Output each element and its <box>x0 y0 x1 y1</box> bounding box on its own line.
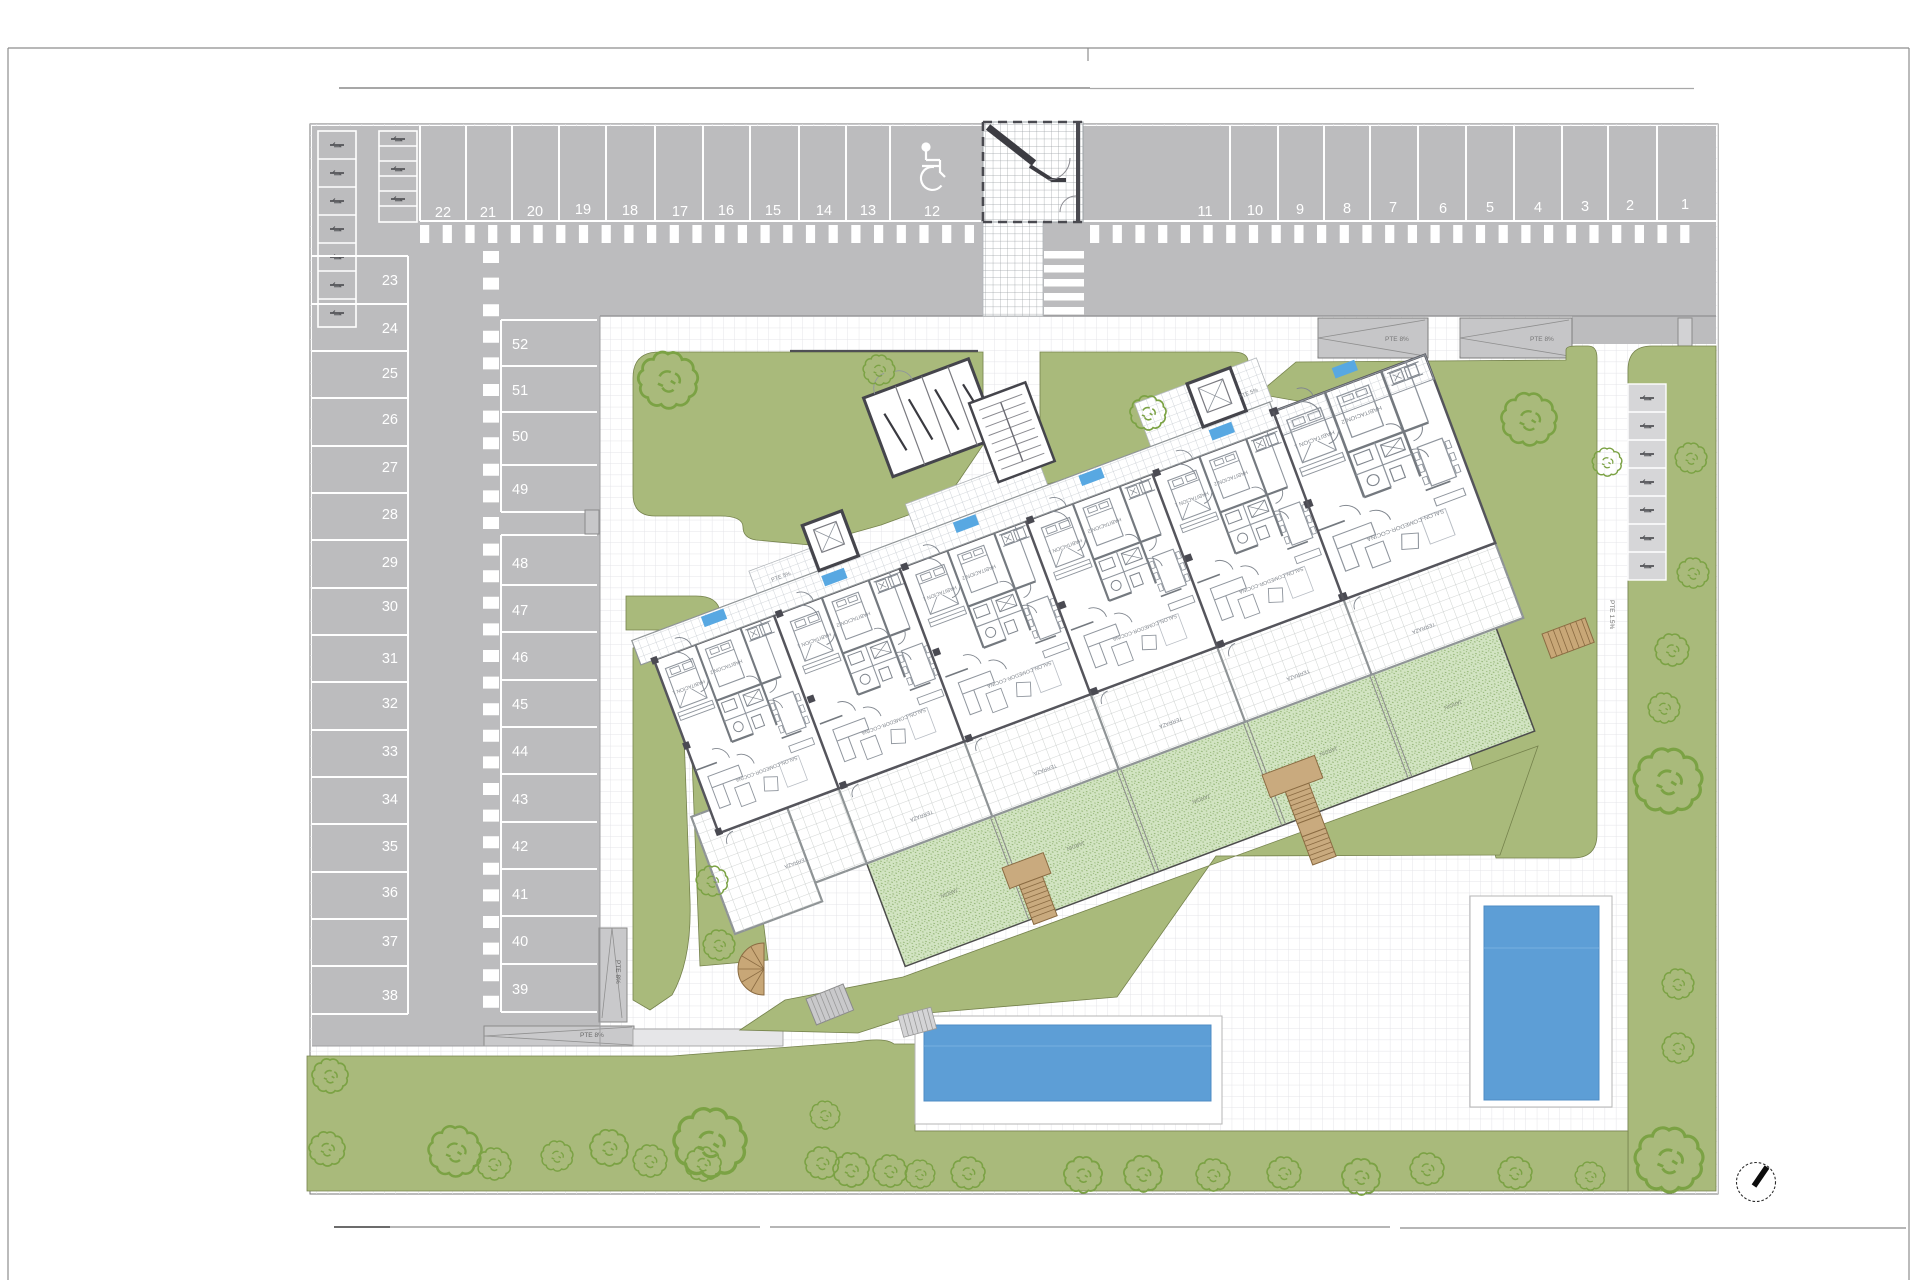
svg-text:44: 44 <box>512 744 528 760</box>
svg-text:19: 19 <box>575 202 591 218</box>
svg-text:49: 49 <box>512 482 528 498</box>
svg-text:23: 23 <box>382 273 398 289</box>
svg-text:48: 48 <box>512 556 528 572</box>
svg-text:9: 9 <box>1296 202 1304 218</box>
svg-text:12: 12 <box>924 204 940 220</box>
svg-text:36: 36 <box>382 885 398 901</box>
svg-text:11: 11 <box>1197 204 1212 220</box>
svg-text:14: 14 <box>816 203 832 219</box>
svg-text:24: 24 <box>382 321 398 337</box>
svg-text:5: 5 <box>1486 200 1494 216</box>
svg-text:PTE 8%: PTE 8% <box>1530 336 1554 343</box>
svg-text:8: 8 <box>1343 201 1351 217</box>
svg-text:25: 25 <box>382 366 398 382</box>
svg-text:3: 3 <box>1581 199 1589 215</box>
svg-text:46: 46 <box>512 650 528 666</box>
svg-text:29: 29 <box>382 555 398 571</box>
svg-text:13: 13 <box>860 203 876 219</box>
svg-text:27: 27 <box>382 460 398 476</box>
svg-text:32: 32 <box>382 696 398 712</box>
svg-text:PTE 1.5%: PTE 1.5% <box>1608 600 1615 629</box>
svg-text:PTE 8%: PTE 8% <box>614 960 621 984</box>
svg-text:40: 40 <box>512 934 528 950</box>
svg-text:26: 26 <box>382 412 398 428</box>
svg-text:PTE 8%: PTE 8% <box>1385 336 1409 343</box>
svg-text:33: 33 <box>382 744 398 760</box>
svg-text:43: 43 <box>512 792 528 808</box>
svg-text:34: 34 <box>382 792 398 808</box>
svg-text:15: 15 <box>765 203 781 219</box>
svg-text:51: 51 <box>512 383 528 399</box>
svg-text:16: 16 <box>718 203 734 219</box>
svg-text:4: 4 <box>1534 200 1542 216</box>
svg-text:45: 45 <box>512 697 528 713</box>
svg-text:2: 2 <box>1626 198 1634 214</box>
svg-text:42: 42 <box>512 839 528 855</box>
svg-text:37: 37 <box>382 934 398 950</box>
svg-text:7: 7 <box>1389 200 1397 216</box>
svg-text:39: 39 <box>512 982 528 998</box>
svg-text:31: 31 <box>382 651 398 667</box>
svg-text:28: 28 <box>382 507 398 523</box>
svg-text:35: 35 <box>382 839 398 855</box>
svg-text:10: 10 <box>1247 203 1263 219</box>
svg-text:52: 52 <box>512 337 528 353</box>
svg-text:1: 1 <box>1681 197 1689 213</box>
svg-text:47: 47 <box>512 603 528 619</box>
svg-text:22: 22 <box>435 205 451 221</box>
svg-text:50: 50 <box>512 429 528 445</box>
svg-text:21: 21 <box>480 205 496 221</box>
svg-text:41: 41 <box>512 887 528 903</box>
svg-text:30: 30 <box>382 599 398 615</box>
svg-text:38: 38 <box>382 988 398 1004</box>
svg-text:17: 17 <box>672 204 688 220</box>
svg-text:20: 20 <box>527 204 543 220</box>
svg-text:6: 6 <box>1439 201 1447 217</box>
svg-text:18: 18 <box>622 203 638 219</box>
